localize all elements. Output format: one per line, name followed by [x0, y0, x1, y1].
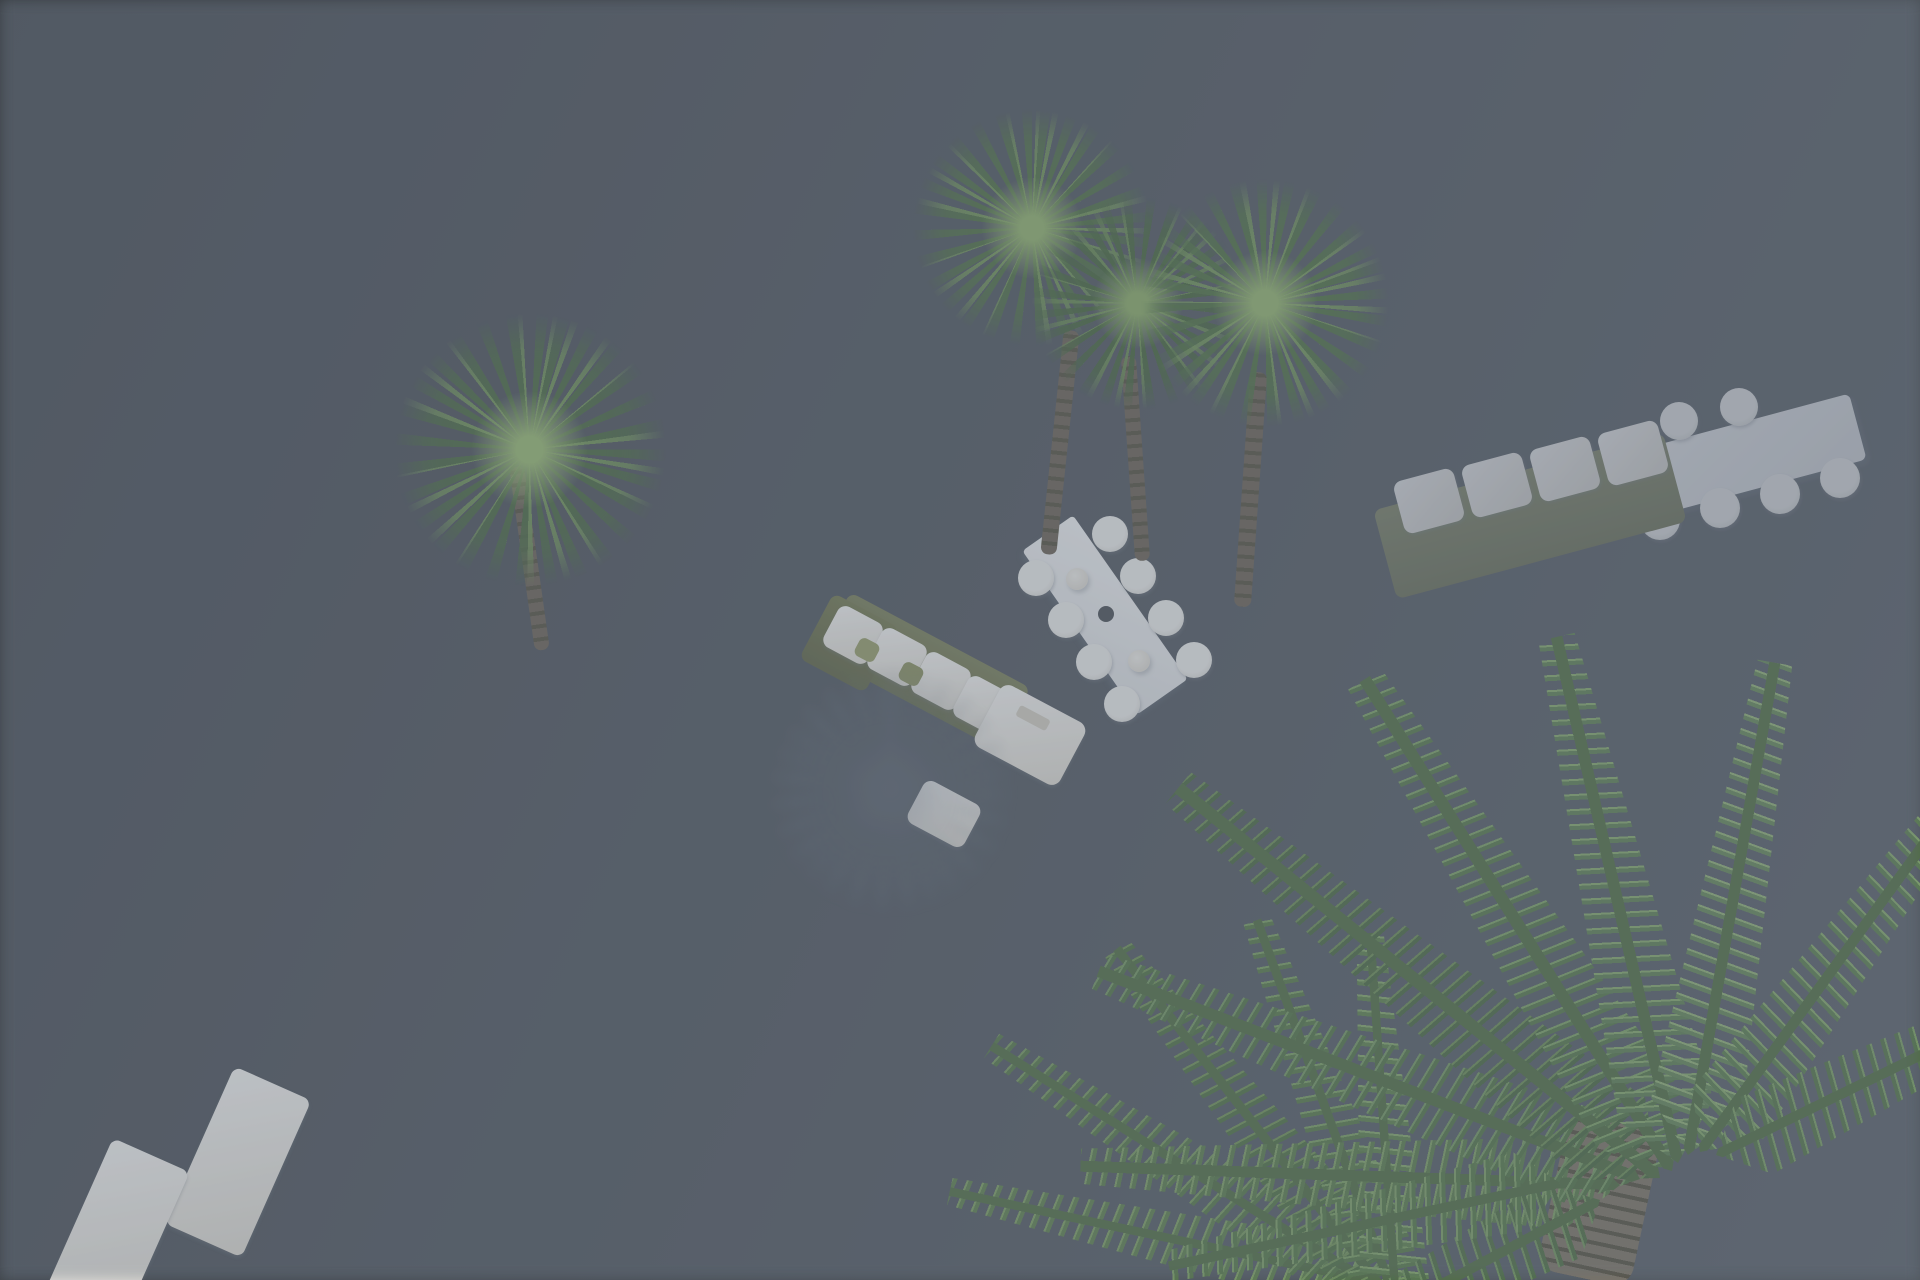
- aerial-villa-render: Aerial 3D architectural rendering of mod…: [0, 0, 1920, 1280]
- wall-shadow: [0, 0, 1920, 1280]
